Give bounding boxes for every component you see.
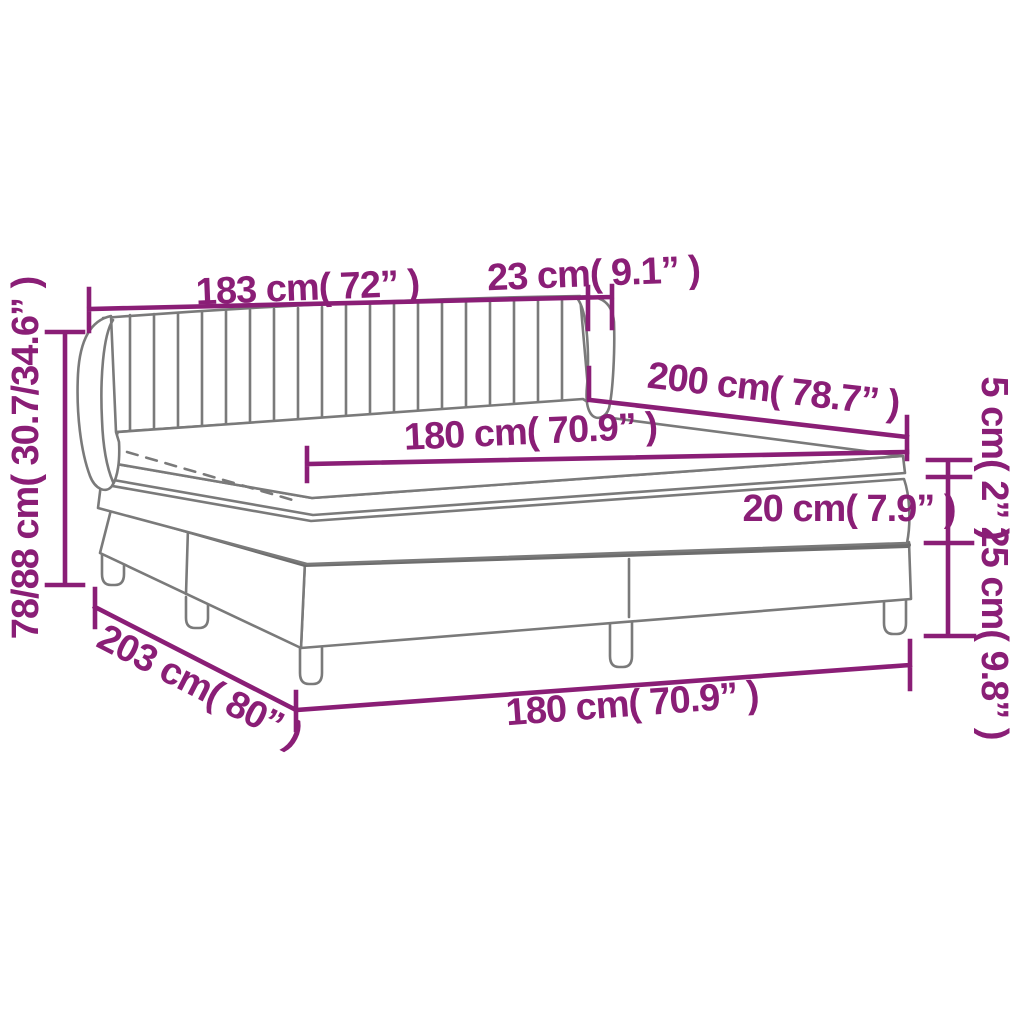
dim-topper-height-label: 5 cm( 2” ) bbox=[973, 376, 1015, 539]
diagram-canvas: 183 cm( 72” ) 23 cm( 9.1” ) 78/88 cm( 30… bbox=[0, 0, 1024, 1024]
dim-headboard-side-depth-label: 23 cm( 9.1” ) bbox=[486, 249, 701, 300]
dim-mattress-height-label: 20 cm( 7.9” ) bbox=[743, 488, 956, 530]
dim-bed-length-label: 200 cm( 78.7” ) bbox=[645, 355, 901, 426]
headboard-left-wing bbox=[78, 316, 120, 490]
dim-mattress-width-bottom-label: 180 cm( 70.9” ) bbox=[504, 674, 760, 734]
dim-total-height-label: 78/88 cm( 30.7/34.6” ) bbox=[5, 277, 47, 639]
dim-height-stack-line bbox=[926, 460, 974, 636]
dim-headboard-width-label: 183 cm( 72” ) bbox=[195, 263, 420, 314]
bed-dimension-diagram: 183 cm( 72” ) 23 cm( 9.1” ) 78/88 cm( 30… bbox=[0, 0, 1024, 1024]
dim-base-height-label: 25 cm( 9.8” ) bbox=[973, 527, 1015, 740]
